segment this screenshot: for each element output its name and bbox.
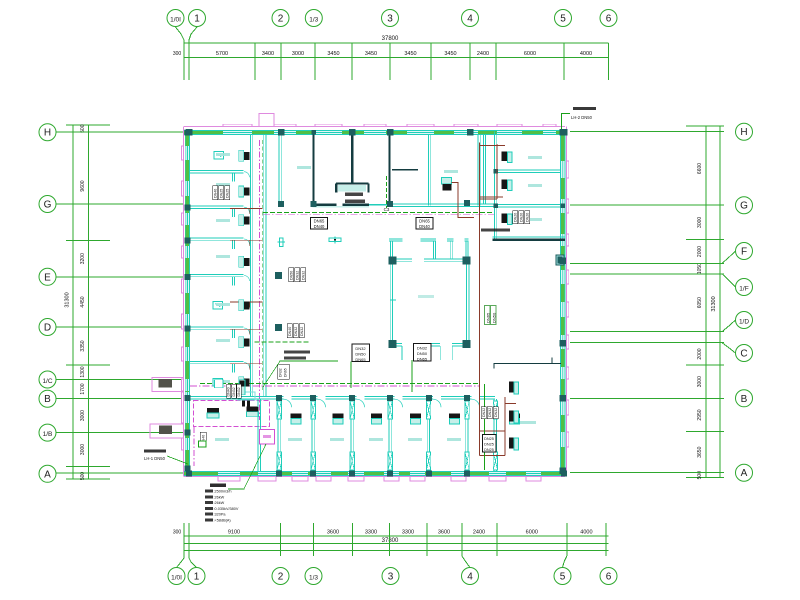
svg-text:4: 4 bbox=[467, 14, 473, 25]
svg-text:C: C bbox=[740, 349, 747, 360]
svg-text:F: F bbox=[741, 247, 747, 258]
svg-text:DN32: DN32 bbox=[488, 408, 492, 417]
svg-text:300: 300 bbox=[173, 51, 182, 57]
svg-text:LH-1 DN50: LH-1 DN50 bbox=[144, 456, 166, 461]
svg-text:DN65: DN65 bbox=[284, 368, 288, 377]
svg-text:DN40: DN40 bbox=[214, 189, 218, 198]
svg-text:3450: 3450 bbox=[365, 51, 377, 57]
svg-text:37800: 37800 bbox=[382, 538, 399, 544]
svg-text:G: G bbox=[740, 201, 748, 212]
svg-text:1/0I: 1/0I bbox=[170, 17, 181, 24]
svg-text:DN40: DN40 bbox=[314, 224, 325, 229]
svg-text:H: H bbox=[44, 128, 51, 139]
svg-text:300: 300 bbox=[173, 530, 182, 536]
svg-text:3000: 3000 bbox=[292, 51, 304, 57]
svg-text:DN65: DN65 bbox=[314, 219, 325, 224]
svg-text:2: 2 bbox=[278, 14, 284, 25]
svg-text:1/3: 1/3 bbox=[309, 575, 318, 582]
svg-text:DN40: DN40 bbox=[227, 387, 231, 396]
svg-text:3400: 3400 bbox=[262, 51, 274, 57]
svg-text:DN50: DN50 bbox=[491, 312, 496, 323]
svg-text:1/D: 1/D bbox=[739, 319, 749, 326]
svg-text:DN32: DN32 bbox=[300, 327, 304, 336]
svg-text:31300: 31300 bbox=[65, 292, 71, 307]
svg-text:31300: 31300 bbox=[711, 296, 717, 311]
svg-text:DN65: DN65 bbox=[417, 357, 428, 362]
svg-text:3450: 3450 bbox=[327, 51, 339, 57]
svg-text:DN20: DN20 bbox=[520, 213, 524, 222]
svg-text:6: 6 bbox=[606, 572, 612, 583]
svg-text:DN50: DN50 bbox=[290, 271, 294, 280]
svg-text:DN20: DN20 bbox=[526, 213, 530, 222]
svg-text:D: D bbox=[44, 323, 51, 334]
svg-text:5700: 5700 bbox=[216, 51, 228, 57]
svg-text:9600: 9600 bbox=[80, 180, 86, 191]
svg-text:2400: 2400 bbox=[477, 51, 489, 57]
svg-text:B: B bbox=[44, 394, 51, 405]
svg-text:DN50: DN50 bbox=[355, 352, 366, 357]
svg-text:DN25: DN25 bbox=[484, 437, 494, 441]
svg-text::26kW: :26kW bbox=[214, 495, 225, 499]
svg-text:DN32: DN32 bbox=[232, 387, 236, 396]
svg-text::2500m3/h: :2500m3/h bbox=[214, 490, 232, 494]
svg-text::0.035kV/380V: :0.035kV/380V bbox=[214, 507, 239, 511]
svg-text:DN32: DN32 bbox=[279, 368, 283, 377]
svg-text:3000: 3000 bbox=[80, 410, 86, 421]
svg-text:1300: 1300 bbox=[80, 366, 86, 377]
svg-text:1: 1 bbox=[194, 14, 200, 25]
svg-text:1/3: 1/3 bbox=[309, 17, 318, 24]
svg-text:DN40: DN40 bbox=[419, 224, 430, 229]
svg-text:DN32: DN32 bbox=[296, 271, 300, 280]
svg-text:500: 500 bbox=[697, 471, 703, 480]
svg-text::26kW: :26kW bbox=[214, 501, 225, 505]
svg-text:DN32: DN32 bbox=[237, 387, 241, 396]
svg-text:DN65: DN65 bbox=[485, 312, 490, 323]
svg-text:6000: 6000 bbox=[524, 51, 536, 57]
svg-text:3000: 3000 bbox=[697, 376, 703, 387]
svg-text:1700: 1700 bbox=[80, 383, 86, 394]
svg-text:3600: 3600 bbox=[327, 530, 339, 536]
svg-text:1050: 1050 bbox=[697, 263, 703, 274]
svg-text:2000: 2000 bbox=[697, 246, 703, 257]
svg-text:3000: 3000 bbox=[80, 444, 86, 455]
svg-text:4450: 4450 bbox=[80, 296, 86, 307]
svg-text:A: A bbox=[44, 469, 51, 480]
svg-text:500: 500 bbox=[80, 124, 86, 133]
svg-text:3300: 3300 bbox=[402, 530, 414, 536]
svg-text:B: B bbox=[741, 394, 748, 405]
svg-text:3: 3 bbox=[388, 572, 394, 583]
svg-text:DN50: DN50 bbox=[417, 351, 428, 356]
svg-text:E: E bbox=[44, 272, 51, 283]
svg-text:37800: 37800 bbox=[382, 36, 399, 42]
svg-text:3350: 3350 bbox=[80, 340, 86, 351]
svg-text:1/F: 1/F bbox=[739, 286, 748, 293]
svg-text:DN20: DN20 bbox=[514, 213, 518, 222]
svg-text:DN32: DN32 bbox=[294, 327, 298, 336]
svg-text:6050: 6050 bbox=[697, 297, 703, 308]
svg-text:9100: 9100 bbox=[228, 530, 240, 536]
svg-text:H: H bbox=[740, 127, 747, 138]
svg-text:5: 5 bbox=[560, 572, 566, 583]
svg-text:6600: 6600 bbox=[697, 163, 703, 174]
svg-text::320Pa: :320Pa bbox=[214, 513, 227, 517]
svg-text:3200: 3200 bbox=[80, 253, 86, 264]
svg-text:2: 2 bbox=[278, 572, 284, 583]
svg-text:DN65: DN65 bbox=[419, 219, 430, 224]
svg-text::<58dB(A): :<58dB(A) bbox=[214, 519, 232, 523]
svg-text:3000: 3000 bbox=[697, 217, 703, 228]
svg-text:1/0I: 1/0I bbox=[171, 575, 182, 582]
svg-text:1/B: 1/B bbox=[43, 431, 53, 438]
svg-text:6000: 6000 bbox=[526, 530, 538, 536]
svg-text:DN25: DN25 bbox=[484, 448, 494, 452]
svg-text:DN25: DN25 bbox=[226, 189, 230, 198]
svg-text:3650: 3650 bbox=[697, 446, 703, 457]
svg-text:3: 3 bbox=[387, 14, 393, 25]
svg-text:DN32: DN32 bbox=[417, 346, 428, 351]
svg-text:4000: 4000 bbox=[580, 51, 592, 57]
svg-text:LH-2 DN50: LH-2 DN50 bbox=[571, 115, 593, 120]
svg-text:2000: 2000 bbox=[697, 348, 703, 359]
svg-text:2400: 2400 bbox=[473, 530, 485, 536]
svg-text:G: G bbox=[44, 200, 52, 211]
svg-text:4000: 4000 bbox=[580, 530, 592, 536]
svg-text:6: 6 bbox=[606, 14, 612, 25]
svg-text:DN65: DN65 bbox=[355, 357, 366, 362]
svg-text:DN32: DN32 bbox=[482, 408, 486, 417]
svg-text:3600: 3600 bbox=[438, 530, 450, 536]
svg-text:3450: 3450 bbox=[444, 51, 456, 57]
svg-text:DN40: DN40 bbox=[288, 327, 292, 336]
svg-text:5: 5 bbox=[560, 14, 566, 25]
svg-text:2950: 2950 bbox=[697, 409, 703, 420]
svg-text:3300: 3300 bbox=[365, 530, 377, 536]
svg-text:DN25: DN25 bbox=[220, 189, 224, 198]
svg-text:A: A bbox=[741, 468, 748, 479]
svg-text:1: 1 bbox=[194, 572, 200, 583]
svg-text:1/C: 1/C bbox=[42, 378, 52, 385]
svg-text:4: 4 bbox=[467, 572, 473, 583]
svg-text:DN32: DN32 bbox=[302, 271, 306, 280]
svg-text:DN32: DN32 bbox=[355, 346, 366, 351]
svg-text:DN32: DN32 bbox=[494, 408, 498, 417]
svg-text:DN25: DN25 bbox=[484, 443, 494, 447]
svg-text:3450: 3450 bbox=[404, 51, 416, 57]
